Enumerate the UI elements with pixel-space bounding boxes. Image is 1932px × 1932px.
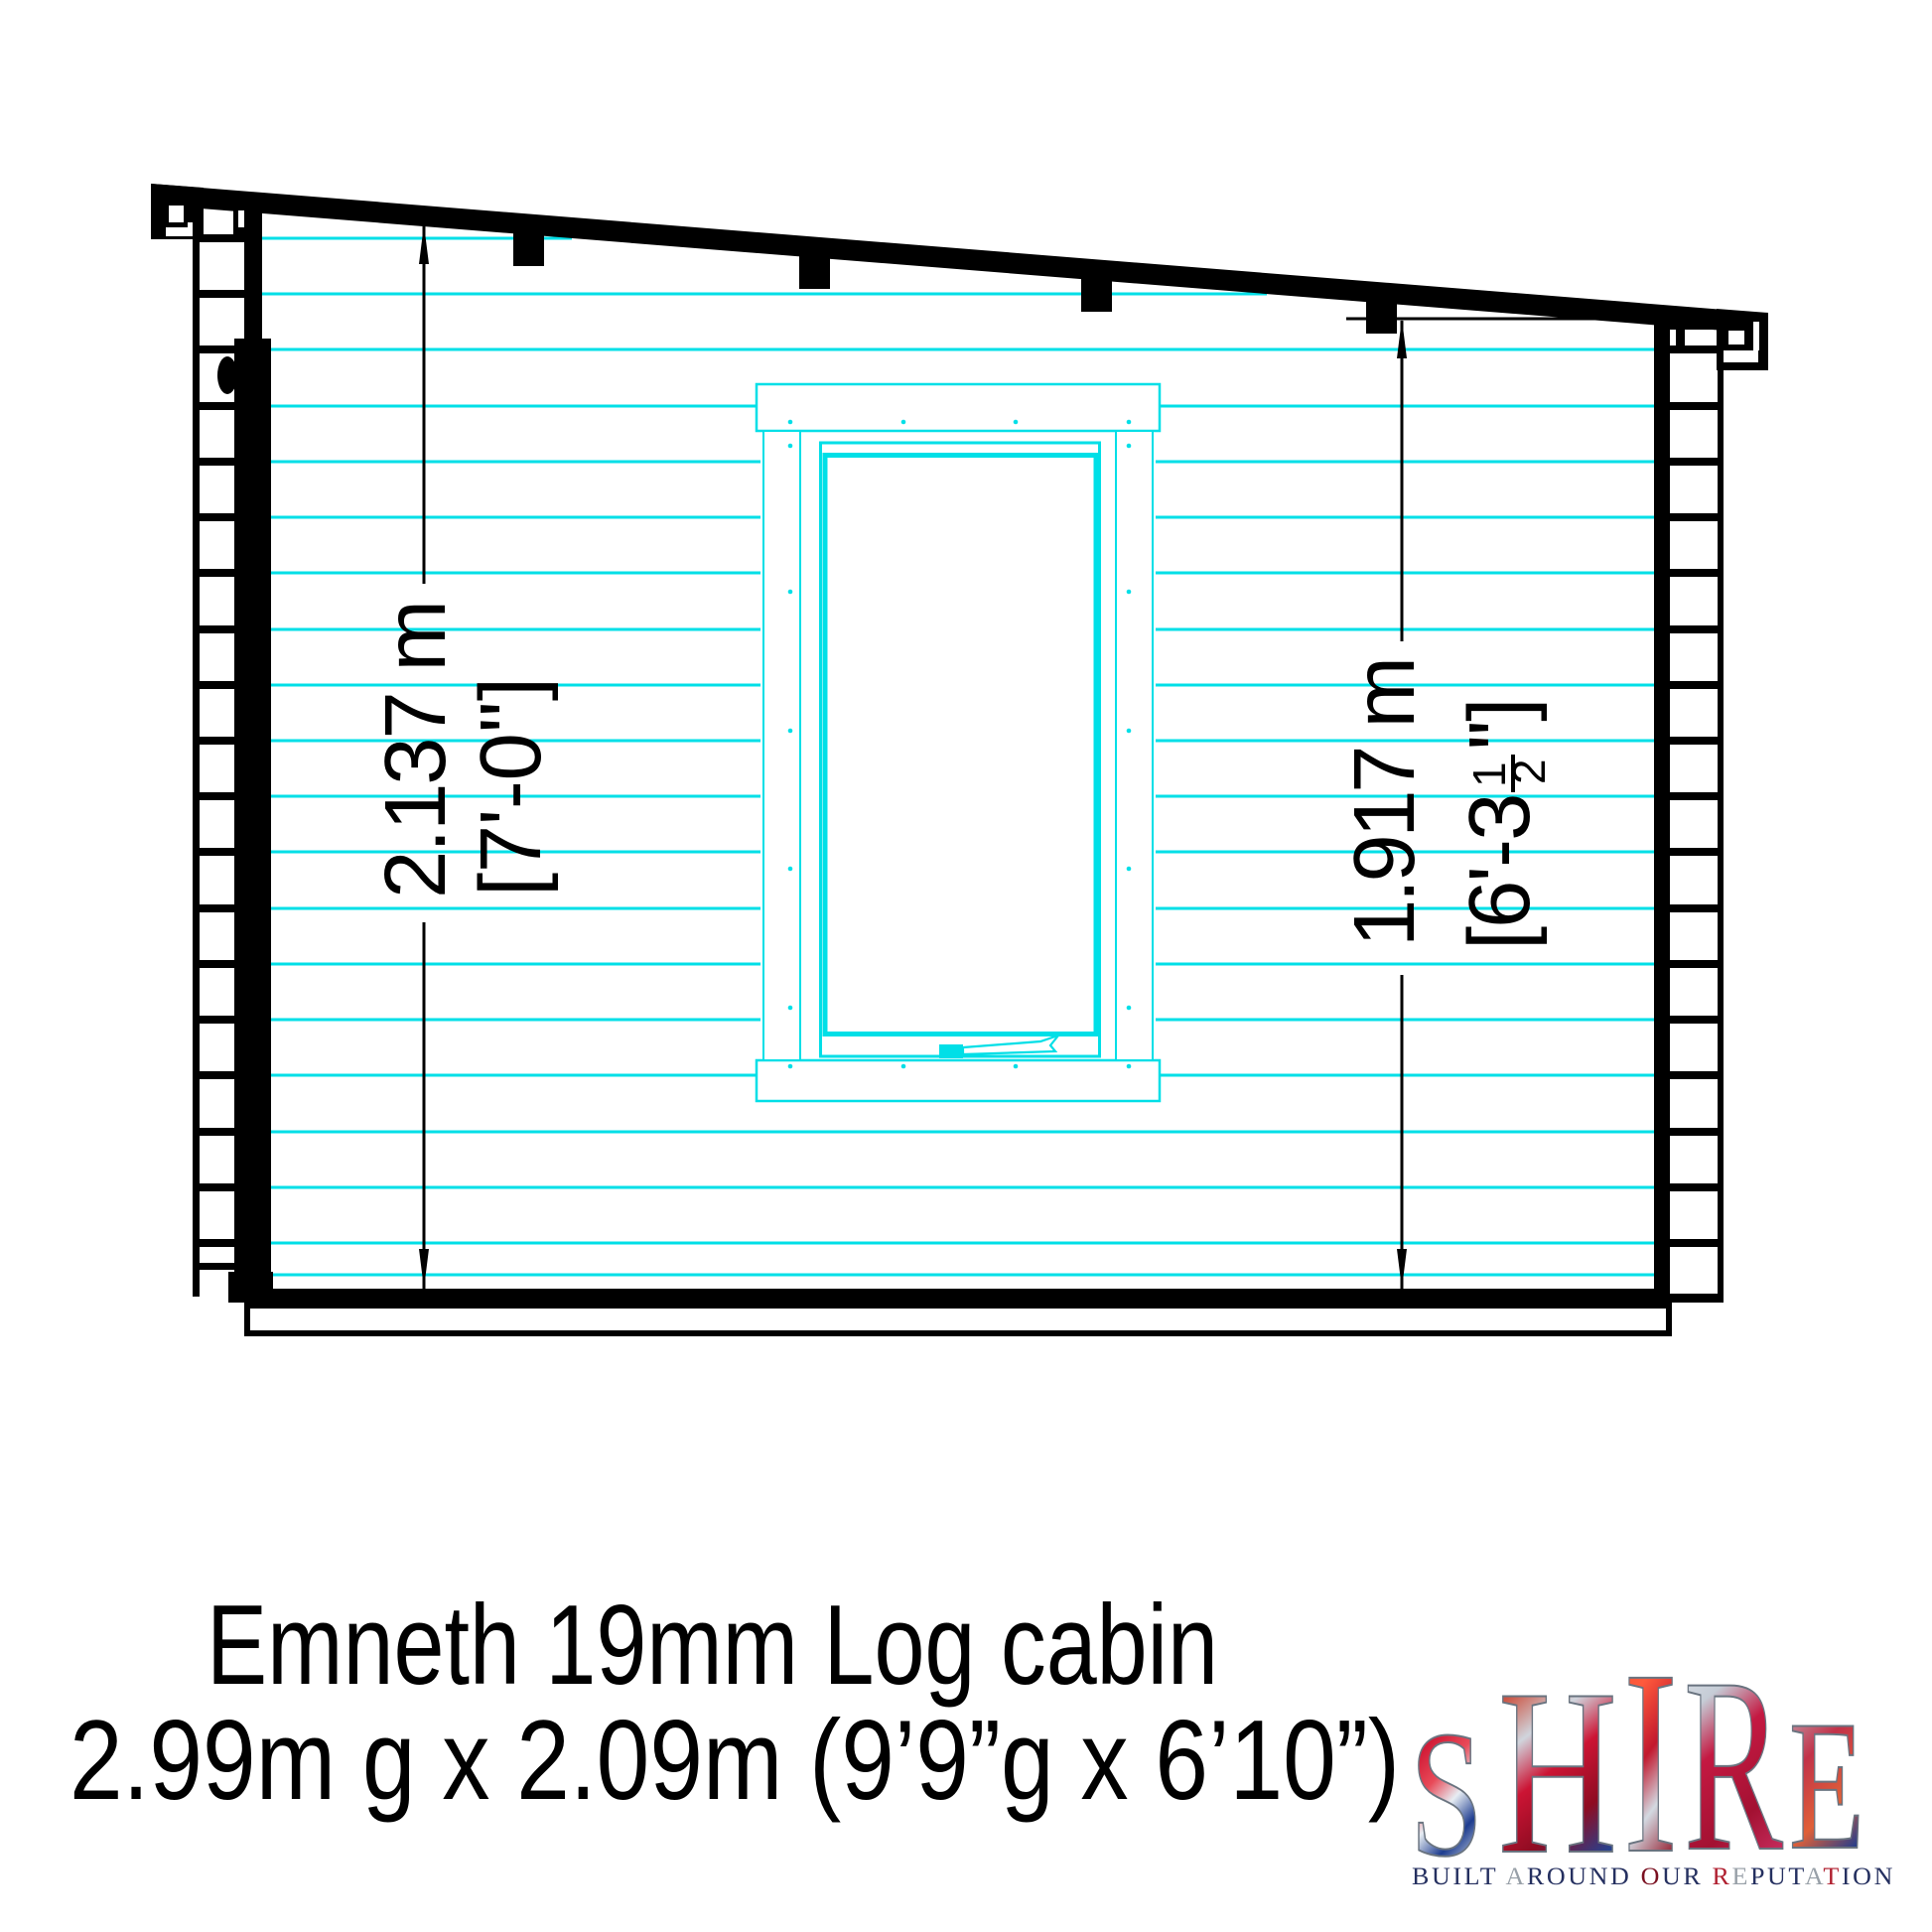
svg-text:[7'-0'']: [7'-0'']	[463, 679, 559, 897]
svg-text:2.99m g x 2.09m (9’9”g x 6’10”: 2.99m g x 2.09m (9’9”g x 6’10”)	[69, 1698, 1400, 1824]
svg-text:'']: '']	[1451, 700, 1548, 751]
svg-text:[6'-3: [6'-3	[1451, 794, 1548, 950]
svg-text:BUILT AROUND OUR REPUTATION: BUILT AROUND OUR REPUTATION	[1412, 1863, 1895, 1890]
svg-text:1.917 m: 1.917 m	[1336, 660, 1433, 947]
svg-text:Emneth 19mm Log cabin: Emneth 19mm Log cabin	[207, 1583, 1218, 1709]
svg-text:2: 2	[1503, 759, 1555, 784]
svg-text:R: R	[1684, 1627, 1783, 1903]
svg-text:E: E	[1789, 1683, 1864, 1888]
